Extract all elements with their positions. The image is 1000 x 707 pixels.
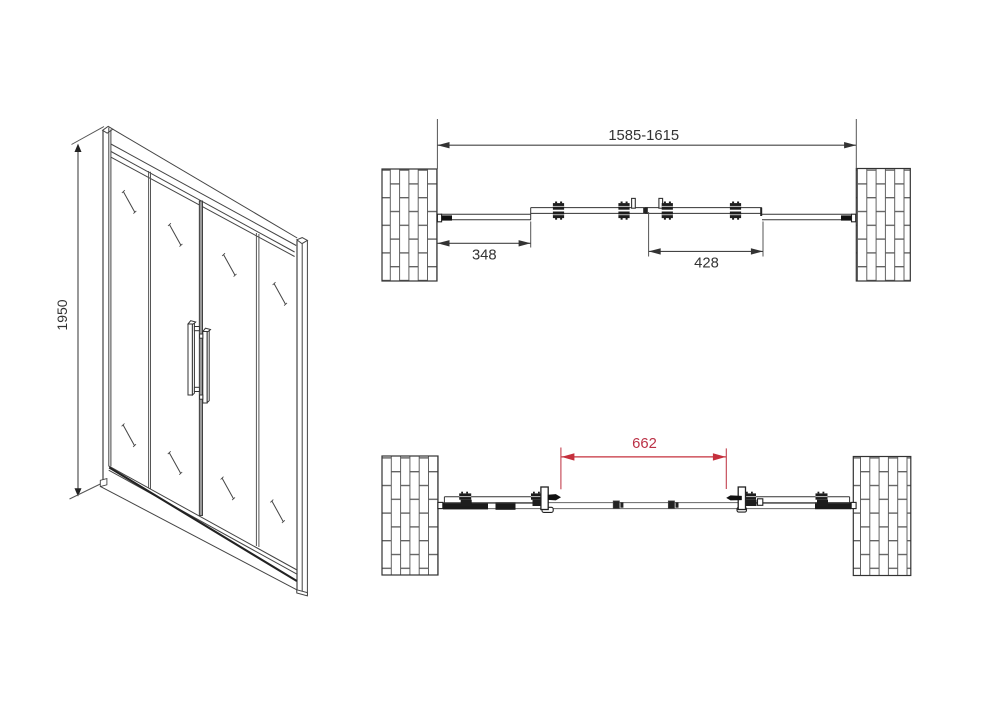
svg-text:348: 348 [472, 247, 497, 263]
svg-text:428: 428 [694, 256, 719, 272]
svg-text:1585-1615: 1585-1615 [608, 128, 679, 144]
svg-text:1950: 1950 [54, 299, 70, 330]
svg-text:662: 662 [632, 436, 657, 452]
